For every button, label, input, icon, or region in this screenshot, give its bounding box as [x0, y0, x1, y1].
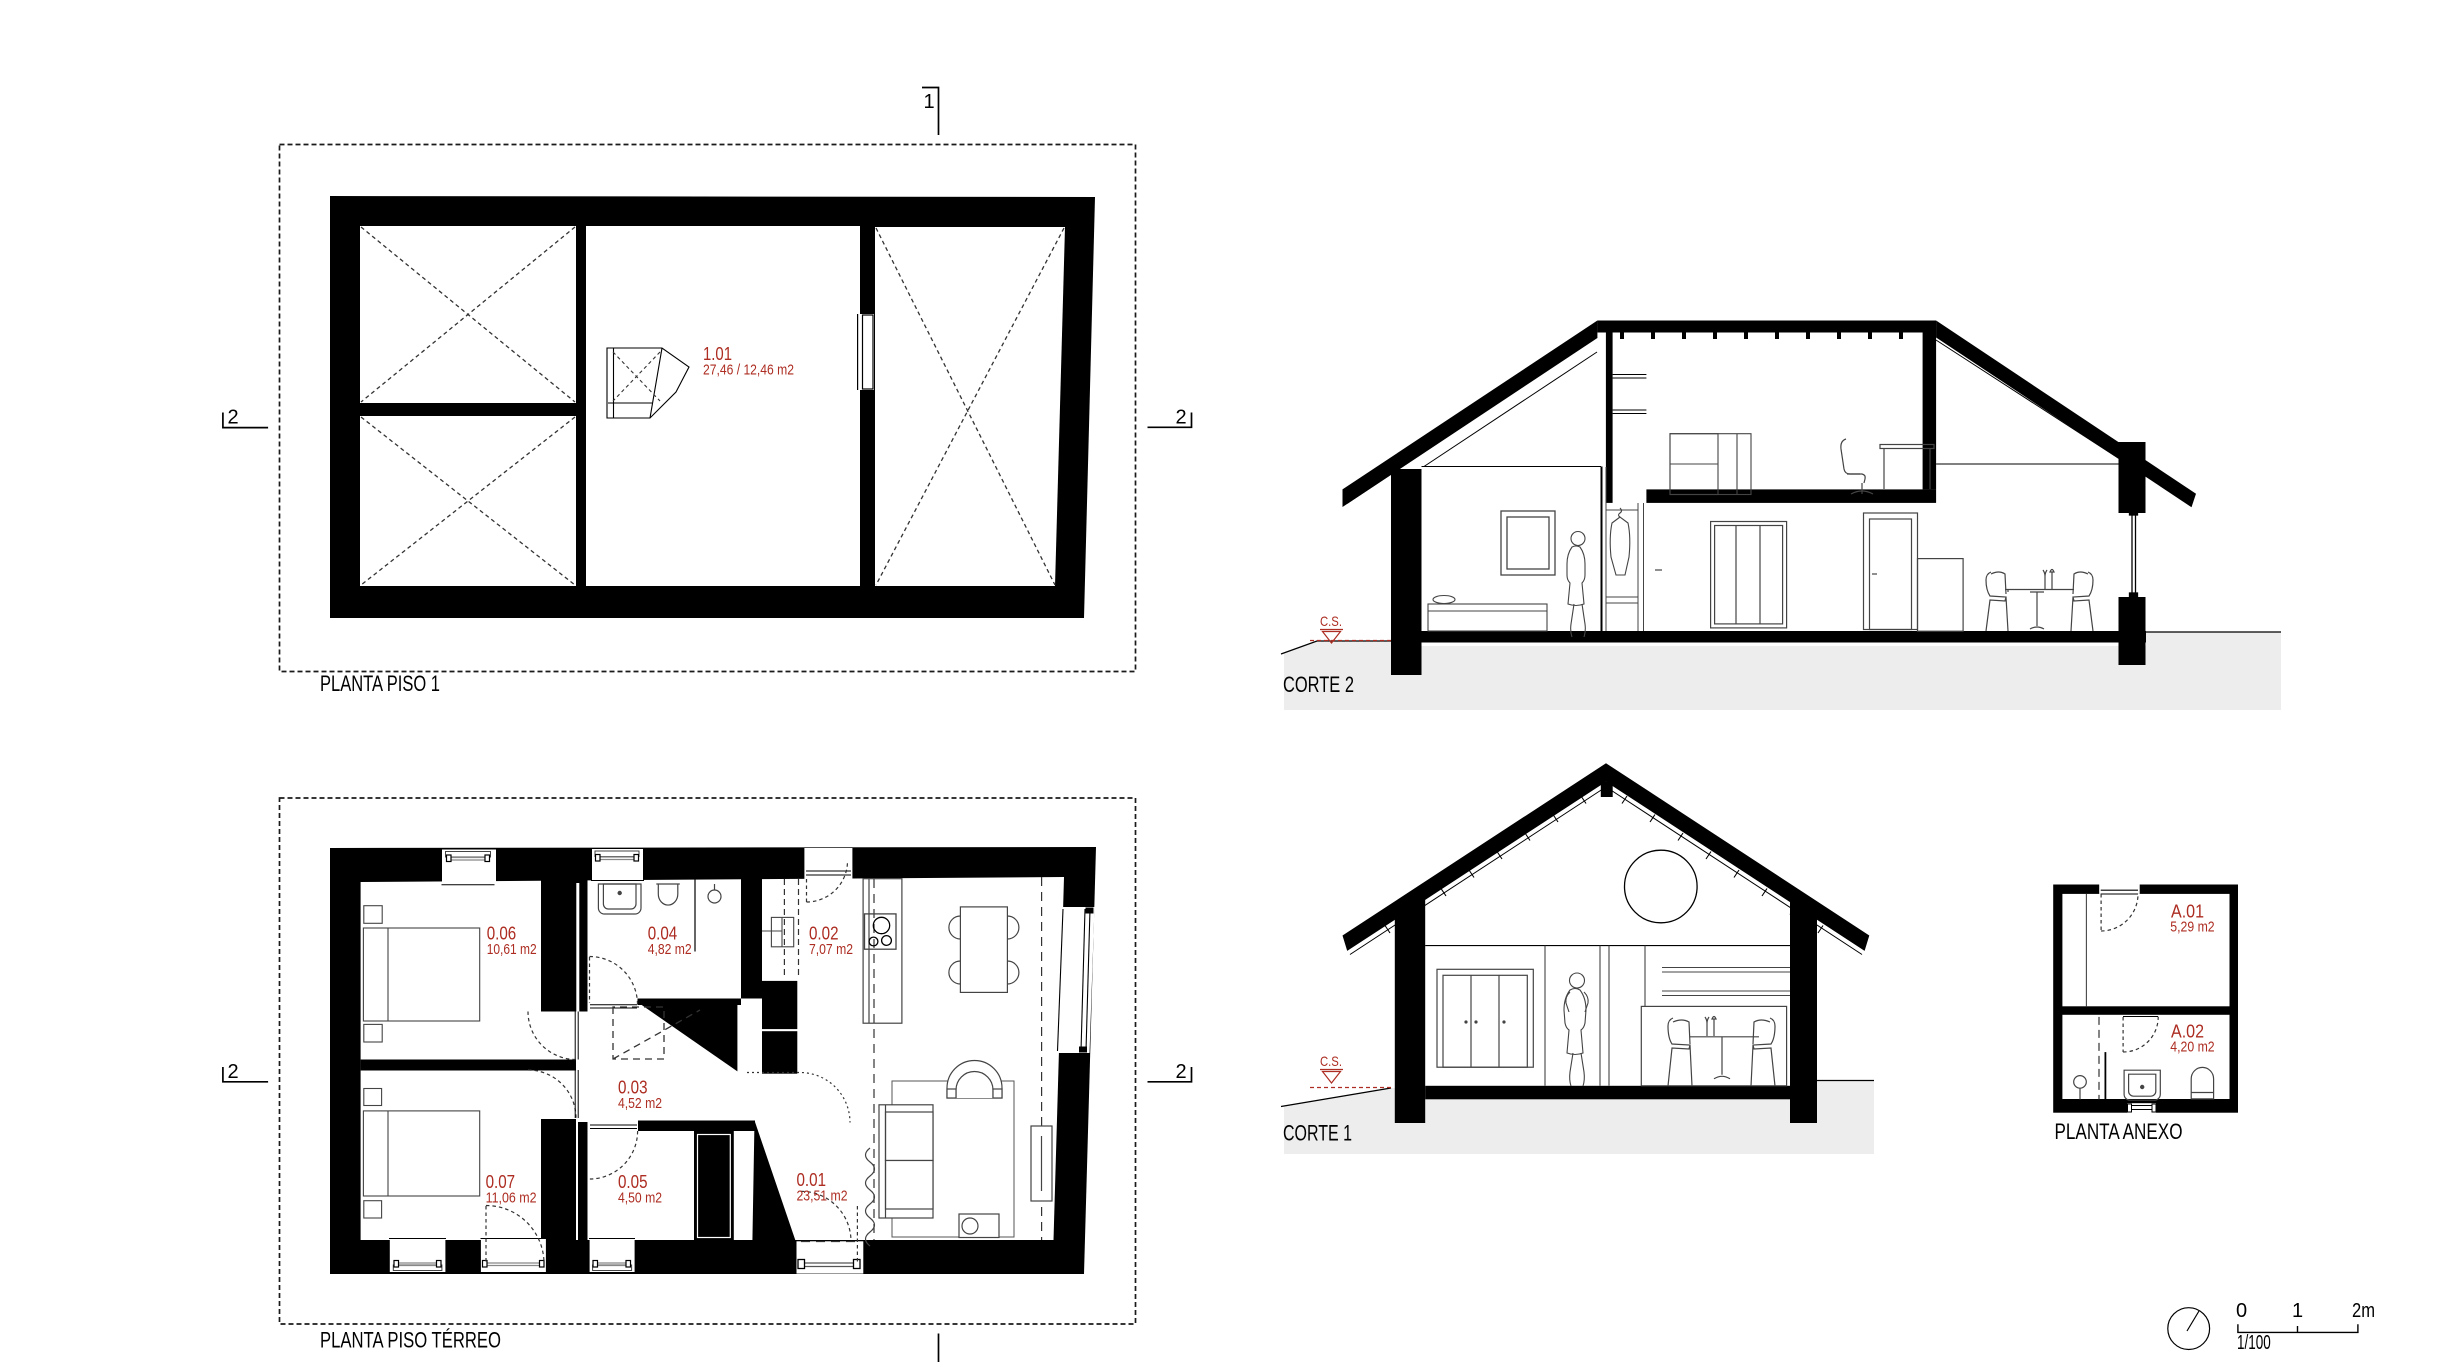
svg-text:5,29 m2: 5,29 m2	[2170, 919, 2214, 936]
svg-text:10,61 m2: 10,61 m2	[487, 941, 537, 958]
svg-text:C.S.: C.S.	[1320, 613, 1342, 629]
svg-text:PLANTA PISO TÉRREO: PLANTA PISO TÉRREO	[320, 1328, 501, 1353]
svg-text:11,06 m2: 11,06 m2	[486, 1190, 537, 1207]
svg-text:0: 0	[2236, 1300, 2247, 1322]
svg-text:27,46 / 12,46 m2: 27,46 / 12,46 m2	[703, 362, 794, 379]
svg-text:1/100: 1/100	[2237, 1332, 2271, 1354]
svg-text:CORTE 2: CORTE 2	[1283, 672, 1354, 697]
svg-text:C.S.: C.S.	[1320, 1053, 1342, 1069]
svg-text:2: 2	[227, 407, 238, 429]
svg-text:2: 2	[227, 1061, 238, 1083]
svg-text:4,50 m2: 4,50 m2	[618, 1190, 662, 1207]
svg-text:1: 1	[2292, 1300, 2303, 1322]
svg-text:4,20 m2: 4,20 m2	[2170, 1039, 2214, 1056]
svg-text:PLANTA ANEXO: PLANTA ANEXO	[2055, 1119, 2183, 1144]
svg-text:1: 1	[923, 91, 934, 113]
svg-text:CORTE 1: CORTE 1	[1283, 1121, 1352, 1146]
svg-text:7,07 m2: 7,07 m2	[809, 941, 853, 958]
svg-text:2m: 2m	[2352, 1300, 2375, 1322]
svg-text:2: 2	[1175, 407, 1186, 429]
svg-text:23,51 m2: 23,51 m2	[797, 1188, 848, 1205]
svg-text:2: 2	[1175, 1061, 1186, 1083]
svg-text:PLANTA PISO 1: PLANTA PISO 1	[320, 671, 440, 696]
svg-text:4,52 m2: 4,52 m2	[618, 1095, 662, 1112]
svg-text:4,82 m2: 4,82 m2	[648, 941, 692, 958]
